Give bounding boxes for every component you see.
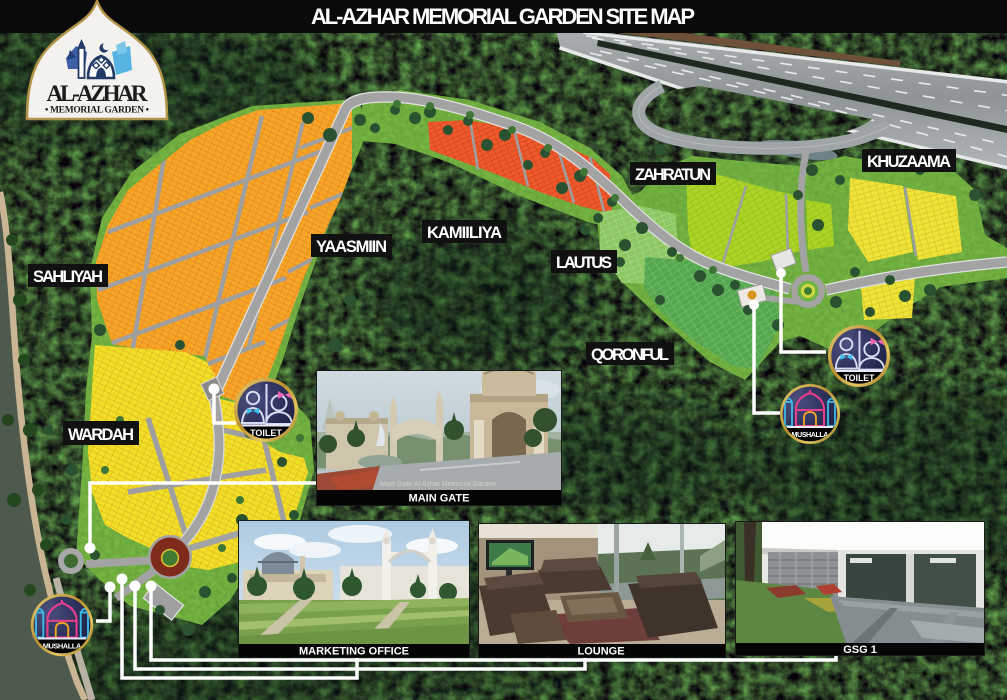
svg-text:LOUNGE: LOUNGE [577, 646, 624, 658]
svg-text:KAMIILIYA: KAMIILIYA [427, 224, 502, 242]
svg-text:• MEMORIAL GARDEN •: • MEMORIAL GARDEN • [45, 106, 149, 116]
svg-text:LAUTUS: LAUTUS [556, 254, 612, 272]
svg-text:WARDAH: WARDAH [68, 426, 134, 444]
svg-text:MARKETING OFFICE: MARKETING OFFICE [299, 646, 409, 658]
svg-text:ZAHRATUN: ZAHRATUN [635, 166, 711, 184]
svg-text:AL-AZHAR MEMORIAL GARDEN SITE: AL-AZHAR MEMORIAL GARDEN SITE MAP [311, 4, 695, 29]
svg-text:KHUZAAMA: KHUZAAMA [867, 153, 951, 171]
svg-text:QORONFUL: QORONFUL [591, 346, 669, 364]
svg-text:SAHLIYAH: SAHLIYAH [33, 268, 103, 286]
svg-text:YAASMIIN: YAASMIIN [316, 238, 387, 256]
svg-text:MAIN GATE: MAIN GATE [409, 493, 470, 505]
svg-text:GSG 1: GSG 1 [843, 644, 877, 656]
svg-text:Main Gate Al Azhar Memorial Ga: Main Gate Al Azhar Memorial Garden [380, 481, 496, 488]
svg-text:AL-AZHAR: AL-AZHAR [47, 81, 148, 106]
